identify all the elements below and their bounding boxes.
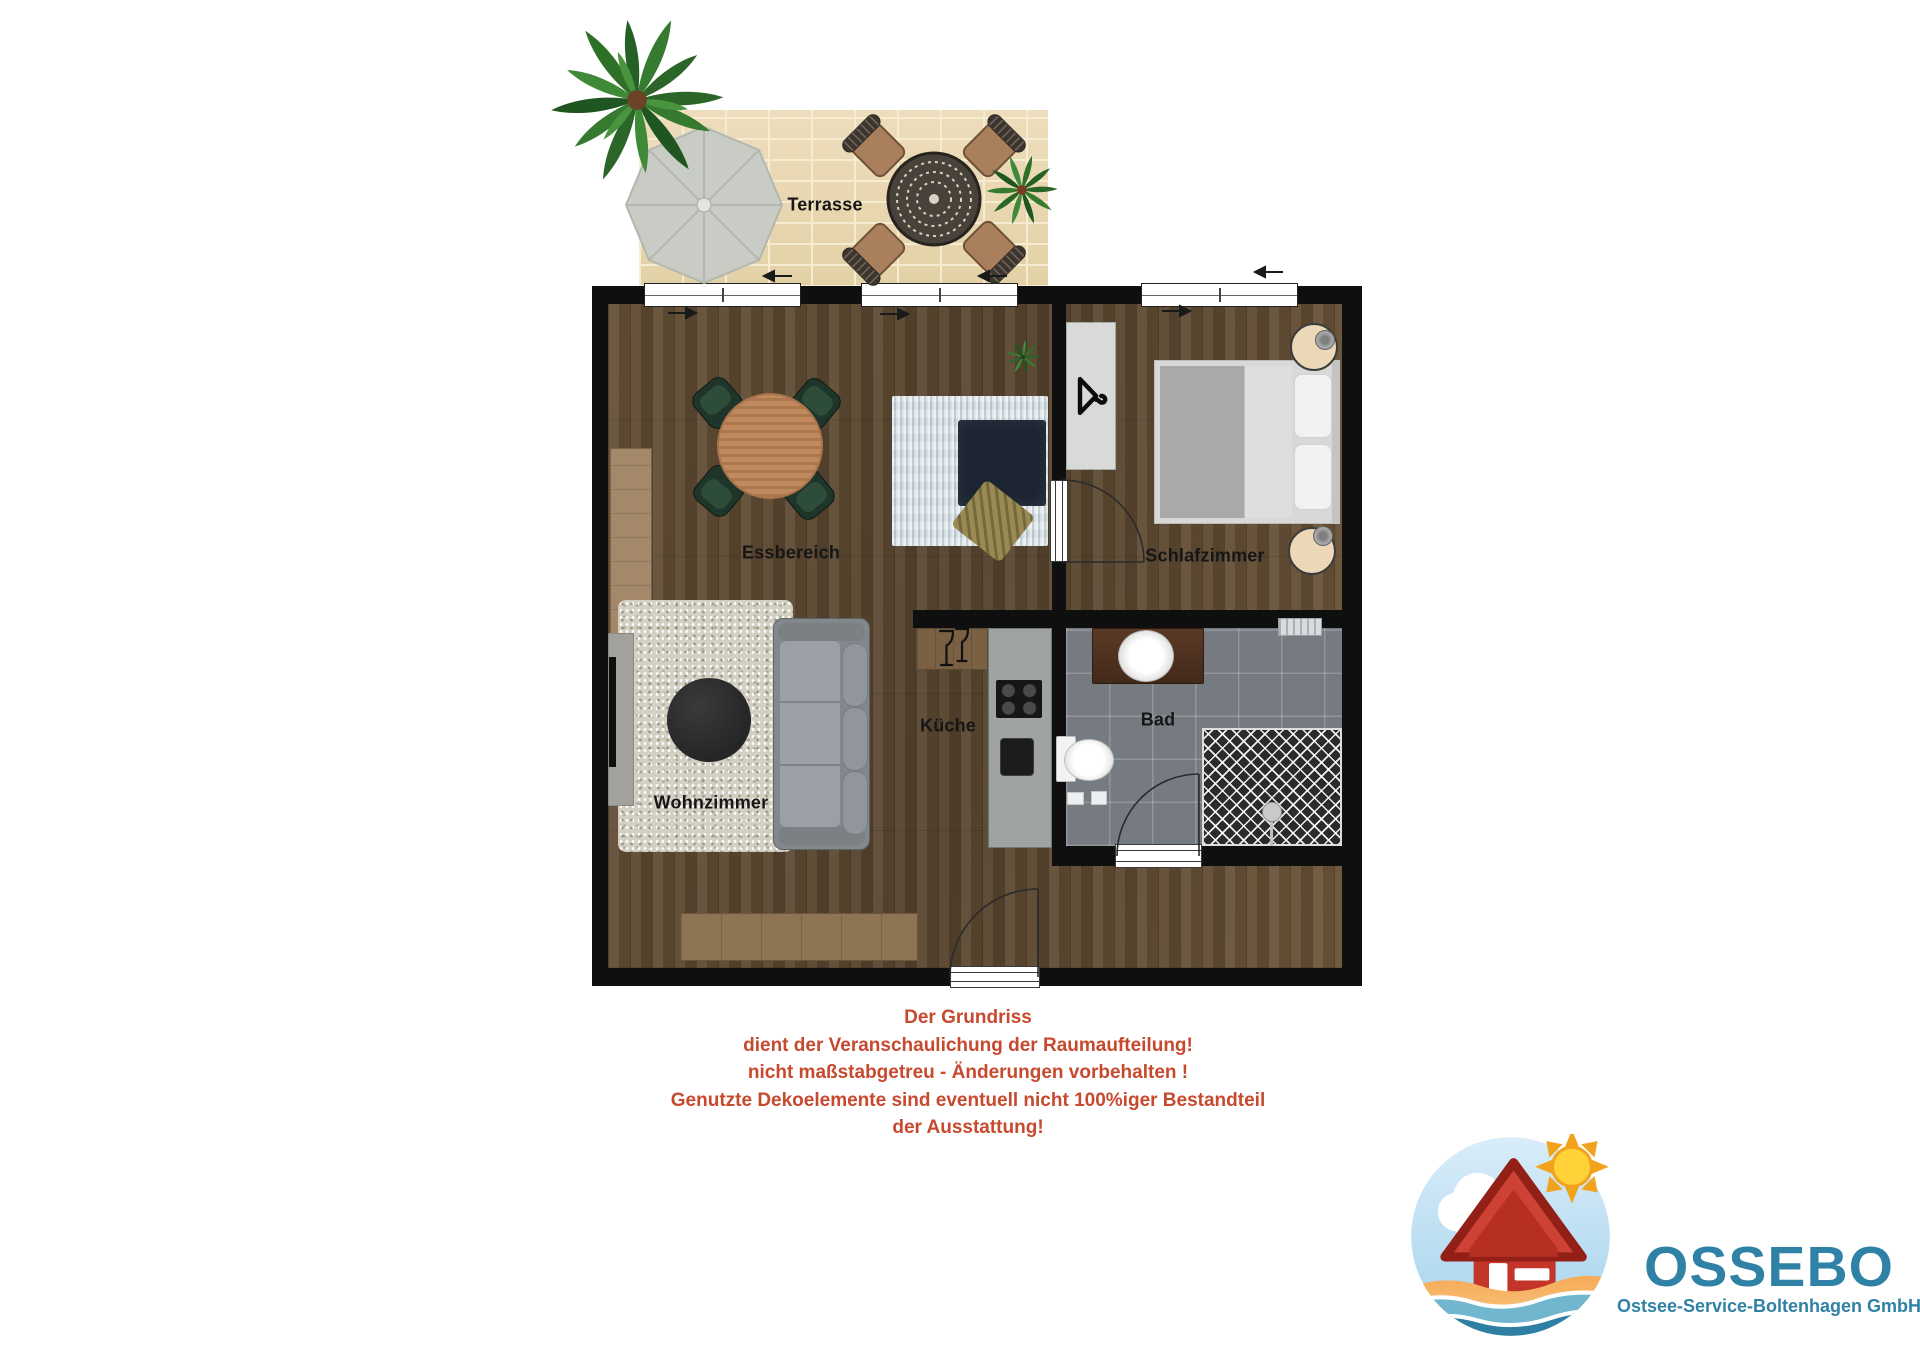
room-label-schlafzimmer: Schlafzimmer bbox=[1145, 546, 1264, 567]
entry-door bbox=[950, 889, 1038, 977]
window-arrow-icon bbox=[764, 271, 792, 281]
disclaimer-line: nicht maßstabgetreu - Änderungen vorbeha… bbox=[671, 1059, 1265, 1087]
window-arrow-icon bbox=[1162, 306, 1190, 316]
logo-wordmark: OSSEBO bbox=[1618, 1234, 1920, 1300]
disclaimer-line: Der Grundriss bbox=[671, 1004, 1265, 1032]
terrace-label: Terrasse bbox=[787, 195, 862, 216]
window-arrow-icon bbox=[1255, 267, 1283, 277]
window-arrow-icon bbox=[880, 309, 908, 319]
floor-plan-canvas: Terrasse Essbereich Schlafzimmer Küche B… bbox=[0, 0, 1920, 1358]
logo-badge bbox=[1408, 1134, 1613, 1344]
room-label-bad: Bad bbox=[1141, 710, 1176, 731]
room-label-kueche: Küche bbox=[920, 716, 976, 737]
disclaimer-line: der Ausstattung! bbox=[671, 1114, 1265, 1142]
disclaimer-line: Genutzte Dekoelemente sind eventuell nic… bbox=[671, 1087, 1265, 1115]
disclaimer-text: Der Grundriss dient der Veranschaulichun… bbox=[671, 1004, 1265, 1142]
bedroom-door bbox=[1062, 480, 1144, 562]
logo-subtitle: Ostsee-Service-Boltenhagen GmbH bbox=[1604, 1296, 1920, 1317]
room-label-essbereich: Essbereich bbox=[742, 543, 840, 564]
bathroom-door bbox=[1117, 774, 1199, 856]
room-label-wohnzimmer: Wohnzimmer bbox=[654, 793, 769, 814]
disclaimer-line: dient der Veranschaulichung der Raumauft… bbox=[671, 1032, 1265, 1060]
window-arrow-icon bbox=[668, 308, 696, 318]
window-arrow-icon bbox=[979, 271, 1007, 281]
ossebo-logo: OSSEBO Ostsee-Service-Boltenhagen GmbH bbox=[1408, 1130, 1920, 1348]
